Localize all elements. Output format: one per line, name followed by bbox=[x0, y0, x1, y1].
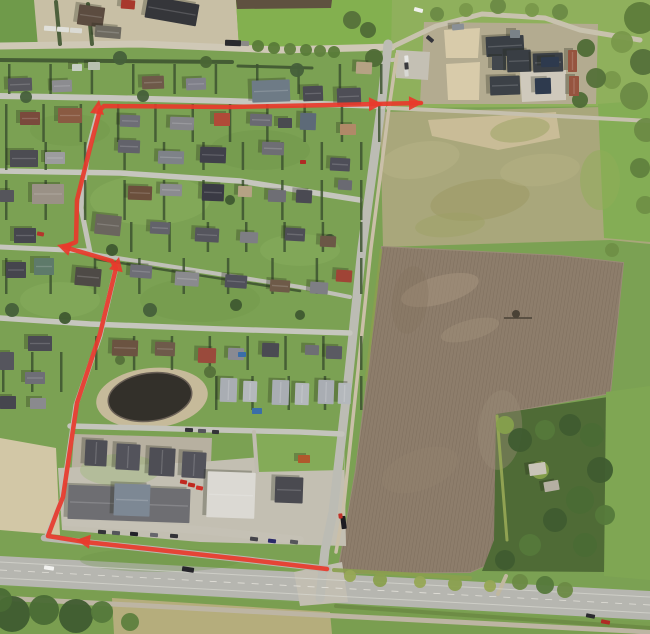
roof-ridge bbox=[162, 190, 180, 191]
garden-hedge bbox=[215, 64, 218, 94]
vehicle bbox=[44, 26, 56, 32]
vehicle bbox=[241, 41, 249, 46]
tree-blob bbox=[373, 573, 387, 587]
garden-hedge bbox=[360, 336, 363, 370]
building-roof bbox=[240, 232, 259, 244]
roof-ridge bbox=[305, 93, 321, 94]
tree-blob bbox=[59, 312, 71, 324]
building-roof bbox=[262, 343, 279, 358]
garden-hedge bbox=[130, 222, 133, 252]
garden-hedge bbox=[321, 180, 324, 220]
building-roof bbox=[340, 124, 356, 135]
top-left-gardens bbox=[0, 0, 38, 48]
garden-hedge bbox=[84, 180, 87, 220]
tree-blob bbox=[611, 31, 633, 53]
tree-blob bbox=[430, 7, 444, 21]
school-sand-north bbox=[444, 28, 480, 58]
roof-ridge bbox=[332, 164, 348, 165]
roof-ridge bbox=[188, 84, 204, 85]
vehicle bbox=[225, 40, 241, 47]
garden-hedge bbox=[242, 142, 245, 170]
tree-blob bbox=[91, 601, 113, 623]
tree-blob bbox=[559, 414, 581, 436]
roof-ridge bbox=[492, 85, 518, 86]
vehicle bbox=[150, 533, 158, 538]
building-roof bbox=[300, 113, 317, 131]
garden-hedge bbox=[173, 64, 176, 94]
building-roof bbox=[310, 281, 329, 294]
tree-blob bbox=[573, 533, 597, 557]
tree-blob bbox=[630, 158, 650, 178]
roof-ridge bbox=[202, 155, 224, 156]
field-lone-tree bbox=[512, 310, 520, 318]
tree-blob bbox=[595, 505, 615, 525]
roof-ridge bbox=[172, 123, 192, 124]
tree-blob bbox=[59, 599, 93, 633]
building-roof bbox=[198, 348, 217, 364]
building-roof bbox=[535, 78, 552, 95]
garden-hedge bbox=[360, 258, 363, 294]
tree-blob bbox=[605, 243, 619, 257]
tree-blob bbox=[586, 68, 606, 88]
north-field-plowed-strip bbox=[236, 0, 332, 9]
roof-ridge bbox=[122, 121, 138, 122]
roof-ridge bbox=[326, 382, 327, 402]
aerial-map-canvas[interactable] bbox=[0, 0, 650, 634]
roof-ridge bbox=[277, 490, 301, 491]
tree-blob bbox=[535, 420, 555, 440]
garden-hedge bbox=[5, 104, 8, 142]
vehicle bbox=[98, 530, 106, 535]
vehicle bbox=[185, 428, 193, 432]
meadow-patch bbox=[580, 150, 620, 210]
vehicle bbox=[404, 62, 409, 69]
tree-blob bbox=[300, 44, 312, 56]
roof-ridge bbox=[54, 86, 70, 87]
vehicle bbox=[57, 27, 69, 33]
building-roof bbox=[0, 190, 14, 202]
building-roof bbox=[541, 57, 559, 68]
roof-ridge bbox=[280, 382, 281, 403]
roof-ridge bbox=[144, 82, 162, 83]
building-roof bbox=[88, 62, 100, 70]
tree-blob bbox=[344, 570, 356, 582]
garden-hedge bbox=[42, 104, 45, 142]
garden-hedge bbox=[132, 64, 135, 94]
garden-hedge bbox=[284, 336, 287, 370]
tree-blob bbox=[566, 486, 594, 514]
tree-blob bbox=[20, 91, 32, 103]
roof-ridge bbox=[10, 84, 30, 85]
building-roof bbox=[30, 398, 46, 409]
tree-blob bbox=[587, 457, 613, 483]
tree-blob bbox=[343, 11, 361, 29]
building-roof bbox=[298, 455, 310, 463]
garden-hedge bbox=[360, 222, 363, 252]
roof-ridge bbox=[339, 96, 359, 97]
tree-blob bbox=[115, 355, 125, 365]
roof-ridge bbox=[120, 146, 138, 147]
school-sand-south bbox=[446, 62, 480, 100]
roof-ridge bbox=[287, 234, 303, 235]
roof-ridge bbox=[114, 348, 136, 349]
building-roof bbox=[238, 186, 252, 197]
tree-blob bbox=[519, 534, 541, 556]
vehicle bbox=[290, 540, 298, 545]
vehicle bbox=[338, 513, 343, 518]
building-roof bbox=[296, 190, 313, 204]
tree-blob bbox=[106, 244, 118, 256]
roof-ridge bbox=[228, 380, 229, 400]
garden-hedge bbox=[360, 180, 363, 220]
garden-hedge bbox=[321, 142, 324, 170]
building-roof bbox=[320, 236, 337, 248]
roof-ridge bbox=[204, 192, 222, 193]
vehicle bbox=[252, 408, 262, 414]
tree-blob bbox=[137, 90, 149, 102]
vehicle bbox=[250, 537, 258, 542]
tree-blob bbox=[328, 46, 340, 58]
tree-blob bbox=[580, 423, 604, 447]
tree-blob bbox=[552, 4, 568, 20]
tree-blob bbox=[525, 3, 539, 17]
tree-blob bbox=[121, 613, 139, 631]
building-roof bbox=[0, 352, 14, 370]
garden-hedge bbox=[378, 104, 381, 142]
vehicle bbox=[212, 430, 219, 434]
building-roof bbox=[356, 62, 373, 75]
tree-blob bbox=[200, 56, 212, 68]
tree-blob bbox=[314, 45, 326, 57]
roof-ridge bbox=[264, 148, 282, 149]
building-roof bbox=[528, 462, 547, 476]
vehicle bbox=[130, 532, 138, 537]
lawn-patch bbox=[20, 282, 100, 318]
tree-blob bbox=[495, 550, 515, 570]
tree-blob bbox=[284, 43, 296, 55]
tree-blob bbox=[29, 595, 59, 625]
vehicle bbox=[268, 539, 276, 544]
tree-blob bbox=[204, 366, 216, 378]
vehicle bbox=[198, 429, 206, 433]
tree-blob bbox=[252, 40, 264, 52]
vehicle bbox=[170, 534, 178, 539]
garden-hedge bbox=[360, 142, 363, 170]
garden-hedge bbox=[360, 376, 363, 410]
roof-ridge bbox=[130, 193, 150, 194]
tree-blob bbox=[484, 580, 496, 592]
building-roof bbox=[278, 118, 292, 128]
building-roof bbox=[305, 345, 319, 355]
vehicle bbox=[404, 55, 409, 62]
tree-blob bbox=[557, 582, 573, 598]
tree-blob bbox=[459, 3, 473, 17]
building-roof bbox=[72, 64, 82, 71]
garden-hedge bbox=[60, 352, 63, 392]
building-roof bbox=[0, 396, 16, 409]
tree-blob bbox=[620, 82, 648, 110]
tree-blob bbox=[295, 310, 305, 320]
tree-blob bbox=[5, 303, 19, 317]
roof-ridge bbox=[250, 383, 251, 400]
building-roof bbox=[121, 0, 136, 10]
tree-blob bbox=[512, 574, 528, 590]
tree-blob bbox=[230, 299, 242, 311]
tree-blob bbox=[414, 576, 426, 588]
tree-blob bbox=[536, 576, 554, 594]
garden-hedge bbox=[154, 104, 157, 142]
southeast-field bbox=[604, 386, 650, 580]
tree-blob bbox=[225, 195, 235, 205]
tree-blob bbox=[543, 508, 567, 532]
tree-blob bbox=[448, 577, 462, 591]
building-roof bbox=[452, 23, 464, 30]
roof-ridge bbox=[344, 385, 345, 402]
building-roof bbox=[268, 190, 286, 203]
roof-ridge bbox=[509, 61, 529, 62]
vehicle bbox=[238, 352, 246, 357]
tree-blob bbox=[360, 22, 376, 38]
garden-hedge bbox=[380, 64, 383, 94]
tree-blob bbox=[290, 63, 304, 77]
tree-blob bbox=[143, 303, 157, 317]
roof-ridge bbox=[160, 157, 182, 158]
tree-blob bbox=[496, 416, 514, 434]
roof-ridge bbox=[302, 385, 303, 403]
roof-ridge bbox=[252, 120, 270, 121]
screenshot-root bbox=[0, 0, 650, 634]
building-roof bbox=[326, 346, 342, 360]
school-parking bbox=[396, 50, 430, 80]
tree-blob bbox=[577, 39, 595, 57]
vehicle bbox=[300, 160, 306, 164]
roof-ridge bbox=[157, 349, 173, 350]
vehicle bbox=[70, 28, 82, 34]
vehicle bbox=[112, 531, 120, 536]
building-roof bbox=[338, 180, 353, 191]
vehicle bbox=[404, 69, 409, 76]
building-roof bbox=[336, 269, 353, 282]
building-roof bbox=[510, 30, 520, 38]
building-roof bbox=[214, 113, 230, 126]
roof-ridge bbox=[152, 228, 168, 229]
garden-hedge bbox=[246, 336, 249, 370]
tree-blob bbox=[508, 428, 532, 452]
tree-blob bbox=[268, 42, 280, 54]
tree-blob bbox=[113, 51, 127, 65]
